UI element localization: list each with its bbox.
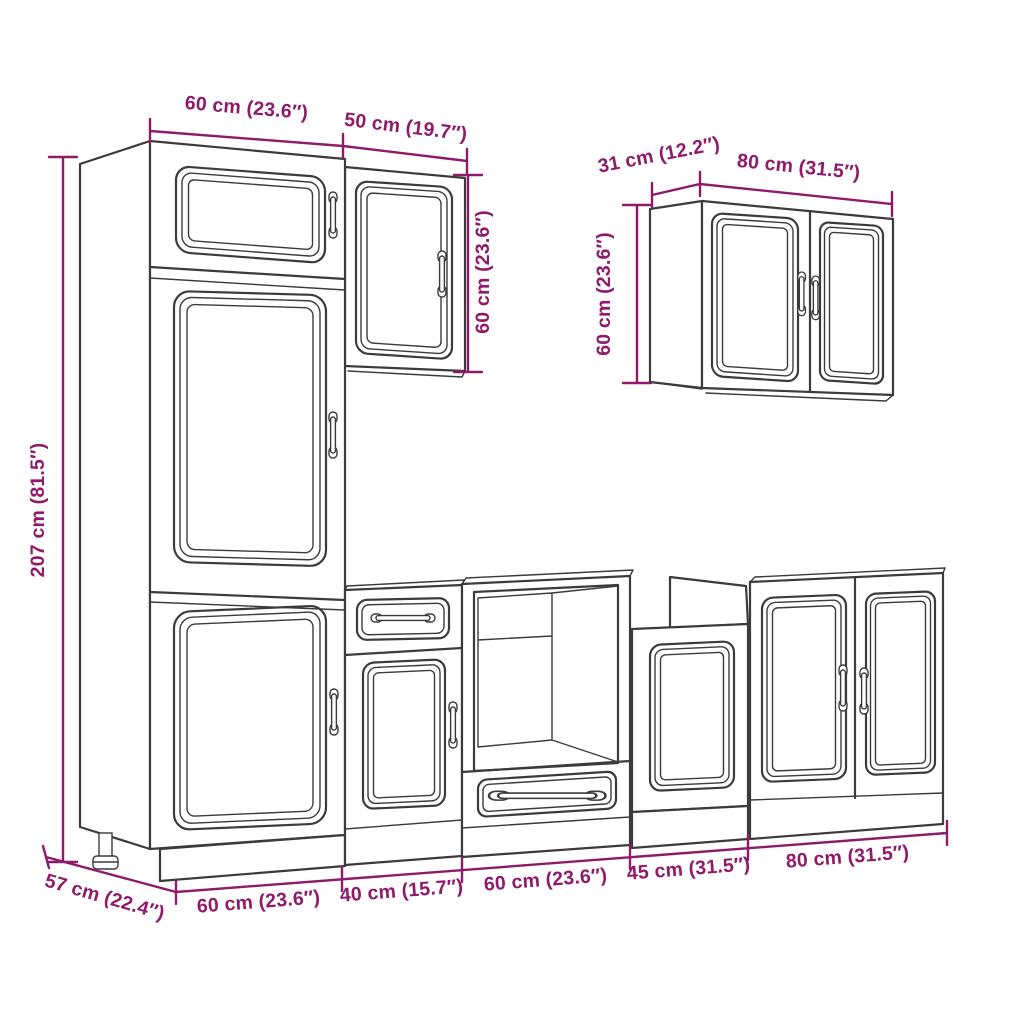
- base-cabinet-80: [750, 568, 945, 839]
- door-handle-icon: [449, 702, 457, 748]
- kitchen-cabinet-diagram: 60 cm (23.6″) 50 cm (19.7″) 207 cm (81.5…: [0, 0, 1024, 1024]
- wall-cabinet-50: [345, 167, 465, 377]
- base-cabinet-40: [345, 580, 464, 865]
- door-handle-icon: [330, 689, 338, 735]
- dim-base2-label: 40 cm (15.7″): [339, 875, 464, 906]
- dim-wall80-height-label: 60 cm (23.6″): [593, 232, 615, 356]
- dim-wall50-height-label: 60 cm (23.6″): [472, 210, 494, 334]
- door-handle-icon: [438, 251, 446, 297]
- door-handle-icon: [329, 192, 337, 238]
- wall-cabinet-80: [650, 201, 893, 401]
- dim-wall80-depth-label: 31 cm (12.2″): [596, 133, 722, 178]
- door-handle-icon: [860, 668, 868, 714]
- dim-tall-width-label: 60 cm (23.6″): [184, 92, 309, 124]
- base-cabinet-45: [632, 577, 748, 848]
- dim-base-depth-label: 57 cm (22.4″): [42, 870, 167, 925]
- door-handle-icon: [812, 276, 820, 320]
- door-handle-icon: [798, 272, 806, 316]
- dim-base1-label: 60 cm (23.6″): [196, 886, 321, 917]
- diagram-canvas: 60 cm (23.6″) 50 cm (19.7″) 207 cm (81.5…: [0, 0, 1024, 1024]
- door-handle-icon: [839, 665, 847, 711]
- door-handle-icon: [329, 412, 337, 458]
- dim-wall50-width-label: 50 cm (19.7″): [343, 109, 468, 146]
- oven-housing-cabinet-60: [462, 570, 633, 857]
- dim-base5-label: 80 cm (31.5″): [785, 841, 910, 872]
- drawer-handle-icon: [489, 791, 605, 800]
- tall-cabinet: [80, 141, 345, 881]
- dim-base3-label: 60 cm (23.6″): [483, 864, 608, 895]
- dim-base4-label: 45 cm (31.5″): [626, 853, 751, 884]
- dim-wall80-width-label: 80 cm (31.5″): [736, 150, 861, 184]
- dim-tall-height-label: 207 cm (81.5″): [27, 443, 49, 578]
- drawer-handle-icon: [371, 614, 435, 622]
